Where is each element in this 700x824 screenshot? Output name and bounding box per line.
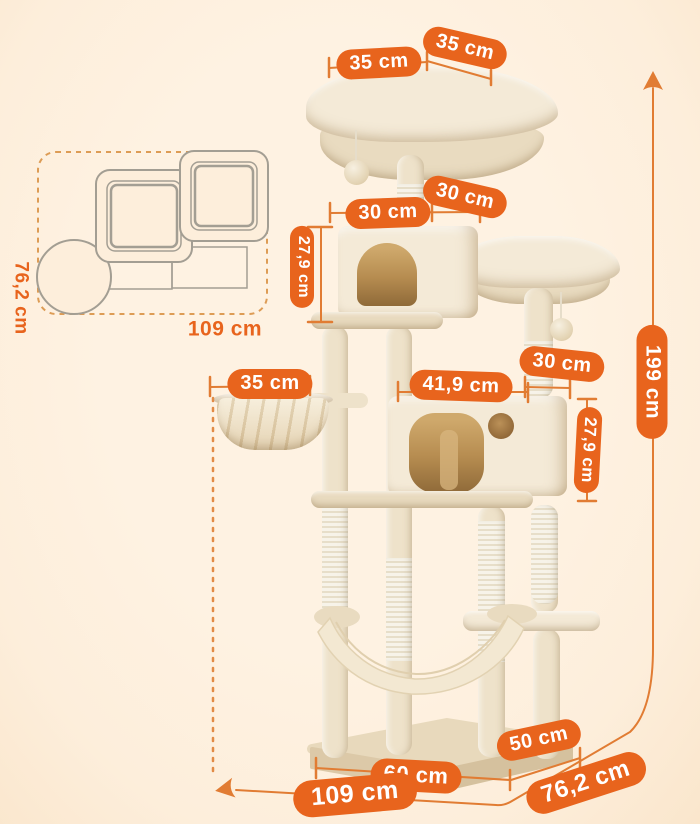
sisal-texture — [478, 521, 505, 662]
post-center — [386, 326, 412, 755]
dim-upper-condo-width: 30 cm — [345, 197, 431, 230]
post-right — [478, 506, 505, 757]
right-shelf — [463, 611, 600, 631]
product-dimension-diagram: 35 cm 35 cm 30 cm 30 cm 27,9 cm 30 cm 35… — [0, 0, 700, 824]
dim-basket-width: 35 cm — [227, 369, 312, 399]
dim-lower-condo-height: 27,9 cm — [573, 406, 602, 493]
middle-perch — [456, 236, 620, 288]
post-far-right-upper — [531, 505, 558, 613]
post-left — [322, 326, 348, 758]
sisal-texture — [386, 558, 412, 661]
dim-upper-condo-height: 27,9 cm — [290, 226, 314, 308]
sisal-texture — [531, 505, 558, 604]
hanging-basket — [217, 398, 329, 450]
lower-condo-interior-post — [440, 430, 458, 490]
inset-footprint-depth-label: 76,2 cm — [12, 261, 31, 334]
lower-condo-platform — [311, 491, 533, 508]
pompom-string — [355, 130, 357, 164]
pompom-ball — [550, 318, 573, 341]
dim-top-perch-width: 35 cm — [336, 46, 423, 80]
upper-condo-arch-opening — [357, 243, 417, 306]
upper-condo-platform — [311, 312, 443, 329]
dim-lower-condo-width: 41,9 cm — [409, 369, 513, 403]
upper-condo — [338, 226, 478, 318]
dim-total-height: 199 cm — [637, 325, 668, 439]
pompom-ball — [344, 160, 369, 185]
inset-footprint-width-label: 109 cm — [188, 319, 262, 340]
sisal-texture — [322, 503, 348, 611]
lower-condo-peephole — [488, 413, 514, 439]
middle-perch-post — [524, 288, 553, 398]
lower-condo — [388, 396, 567, 496]
